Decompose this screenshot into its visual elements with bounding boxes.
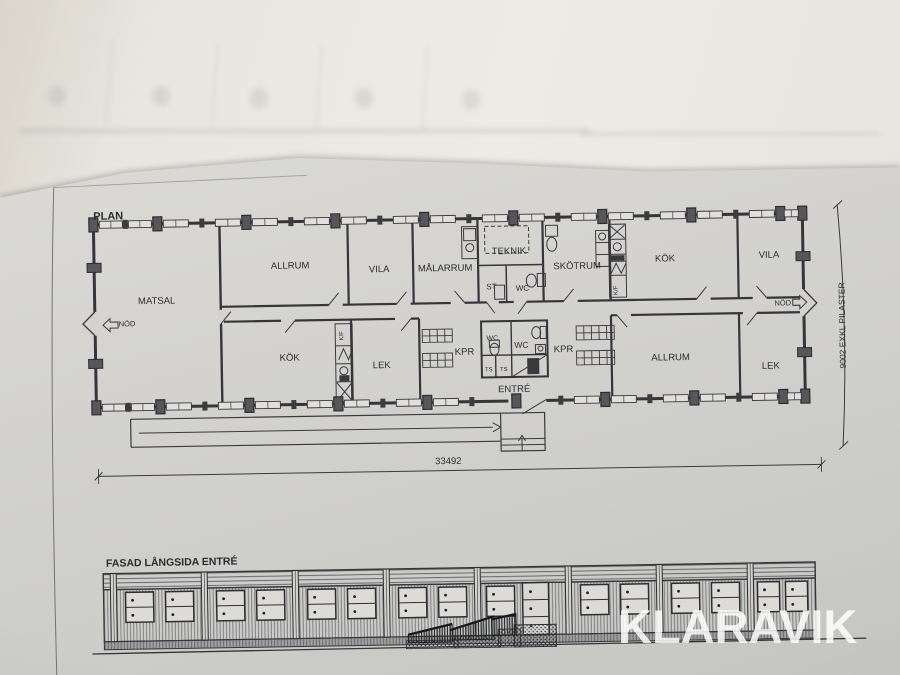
room-label: MÅLARRUM [418,263,473,275]
room-label: LEK [762,361,781,372]
pilaster [779,389,788,403]
sheet-frame-border-top [54,175,307,187]
plan-title: PLAN [93,210,123,222]
pilaster [509,211,518,225]
wall-joint-tick [380,399,385,408]
room-label: K/F [613,285,619,295]
pilaster [687,208,696,222]
room-label: TEKNIK [492,246,527,258]
cubby-grid [577,350,615,365]
room-label: ENTRÉ [498,384,530,396]
room-label: K/F [339,331,345,341]
room-label: KPR [455,347,475,358]
room-label: KPR [554,344,574,355]
wall-joint-tick [288,217,293,226]
room-label: ALLRUM [651,352,690,364]
pilaster [420,212,429,226]
wall-joint-tick [647,394,652,403]
room-label: VILA [759,250,780,261]
pilaster [92,401,101,415]
pilaster [156,400,165,414]
wall-joint-tick [736,393,741,402]
pilaster [89,359,103,368]
wall-joint-tick [126,403,131,412]
cubby-grid [422,329,452,342]
pilaster [334,397,343,411]
cubby-grid [576,325,614,340]
room-label: WC [486,335,498,342]
pilaster [798,348,812,357]
room-label: ALLRUM [271,260,310,272]
pilaster [512,394,521,408]
cubby-grid [423,353,453,367]
room-label: WC [516,284,530,293]
facade-title: FASAD LÅNGSIDA ENTRÉ [106,555,238,570]
plan-door-gaps [91,289,810,412]
klaravik-watermark: KLARAVIK [618,599,857,654]
room-label: WC [514,340,528,350]
architectural-drawing: MATSALALLRUMVILAMÅLARRUMTEKNIKSTWCSKÖTRU… [0,0,900,675]
room-label: NÖD [119,319,136,328]
room-label: TS [500,367,508,373]
height-dimension-label: 9002 EXKL PILASTER [836,282,847,368]
pilaster [242,215,251,229]
wall-joint-tick [558,396,563,405]
drawing-sheet: MATSALALLRUMVILAMÅLARRUMTEKNIKSTWCSKÖTRU… [0,0,900,675]
wall-joint-tick [202,402,207,411]
pilaster [331,214,340,228]
width-dimension-label: 33492 [435,456,462,467]
wall-joint-tick [733,210,738,219]
room-label: ST [486,282,496,291]
wall-joint-tick [555,213,560,222]
room-label: LEK [373,360,392,371]
drawing-sheet-shadow: MATSALALLRUMVILAMÅLARRUMTEKNIKSTWCSKÖTRU… [0,0,900,675]
wall-joint-tick [466,214,471,223]
wall-joint-tick [199,219,204,228]
room-label: VILA [369,264,390,275]
pilaster [598,209,607,223]
entrance-walkway [131,412,546,457]
room-label: TS [485,367,493,373]
pilaster [87,263,101,272]
drawing-tilt-wrapper: MATSALALLRUMVILAMÅLARRUMTEKNIKSTWCSKÖTRU… [0,0,900,675]
pilaster [776,206,785,220]
plan-walls [93,213,805,408]
pilaster [690,391,699,405]
wall-joint-tick [377,216,382,225]
photo-of-floorplan-document: MATSALALLRUMVILAMÅLARRUMTEKNIKSTWCSKÖTRU… [0,0,900,675]
pilaster [423,395,432,409]
room-label: KÖK [279,352,300,363]
room-label: MATSAL [138,296,175,308]
wall-joint-tick [469,397,474,406]
pilaster [153,217,162,231]
wall-joint-tick [291,400,296,409]
pilaster [245,398,254,412]
sheet-frame-border [48,188,62,675]
plan-fixtures [333,224,628,402]
wall-joint-tick [644,211,649,220]
room-label: KÖK [655,253,676,264]
pilaster [796,252,810,261]
room-label: SKÖTRUM [553,260,601,272]
pilaster [798,206,807,220]
room-label: NÖD [774,298,791,307]
wall-joint-tick [123,220,128,229]
pilaster [801,389,810,403]
pilaster [601,392,610,406]
